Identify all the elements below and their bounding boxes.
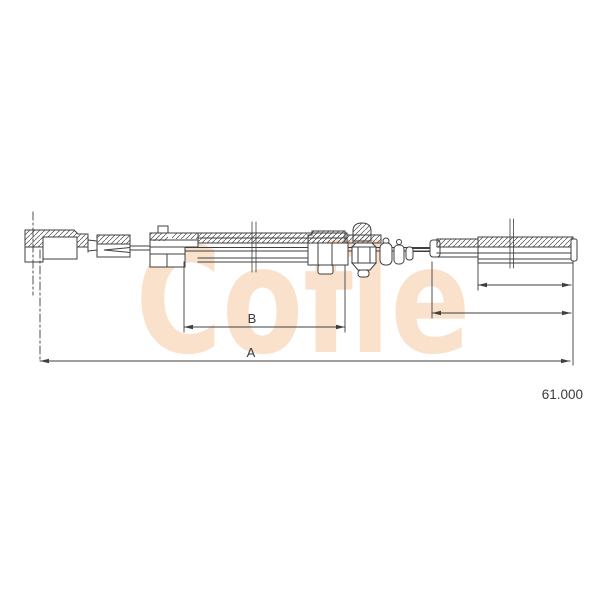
- cable-left-end-fitting: [25, 230, 130, 262]
- cable-technical-drawing: Cofle: [0, 0, 600, 600]
- dimension-b-label: B: [248, 311, 257, 326]
- dimension-a-label: A: [247, 345, 256, 360]
- part-number-label: 61.000: [542, 387, 583, 402]
- catalog-page: Cofle: [0, 0, 600, 600]
